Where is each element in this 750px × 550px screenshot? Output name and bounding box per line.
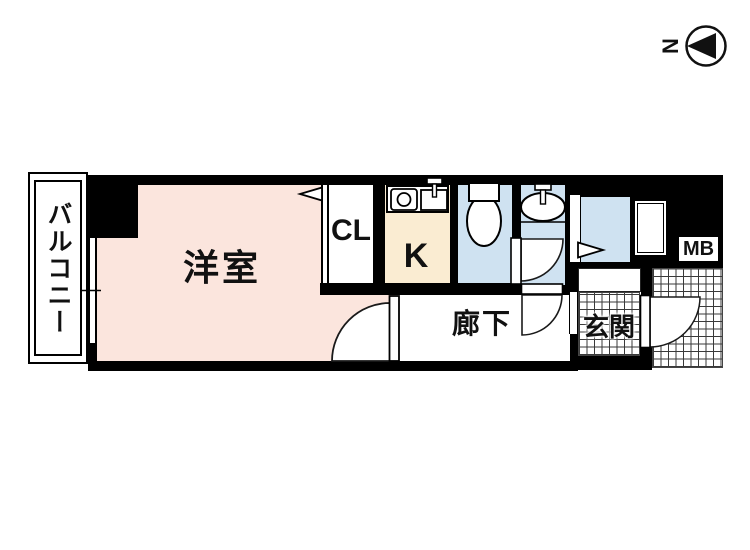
north-arrow-icon [687,27,726,66]
bathtub-inner [637,203,664,253]
entrance-label: 玄関 [580,308,638,342]
floor-plan: バルコニー MB 洋室 CL K 廊下 玄関 N [0,0,750,550]
kitchen-label: K [398,234,434,278]
wall-toilet-washroom [512,185,521,238]
western-room-lower [322,295,395,361]
closet-label: CL [327,212,375,250]
washroom [521,185,565,285]
compass-north-label: N [658,33,684,59]
meter-box: MB [679,237,718,261]
wall-entrance-porch-corner [639,347,652,370]
wall-kitchen-toilet [450,185,458,295]
balcony-window [88,238,97,343]
bathroom [581,197,630,262]
bathroom-door-opening [570,195,580,262]
wall-below-window [88,343,97,363]
western-room-label: 洋室 [160,244,284,286]
wall-entrance-porch-top [641,268,652,298]
entrance-threshold [569,292,578,334]
balcony-label: バルコニー [40,186,76,350]
entrance-step [578,268,641,292]
wall-bottom [88,361,578,371]
corridor-label: 廊下 [438,304,526,340]
wall-above-threshold [565,268,578,294]
wall-under-closet-kitchen [320,283,523,295]
wall-corner-block [88,175,138,238]
bathtub [632,198,669,258]
toilet-room [458,185,512,283]
kitchen-counter [386,185,449,213]
entrance-porch-tile [652,268,723,368]
